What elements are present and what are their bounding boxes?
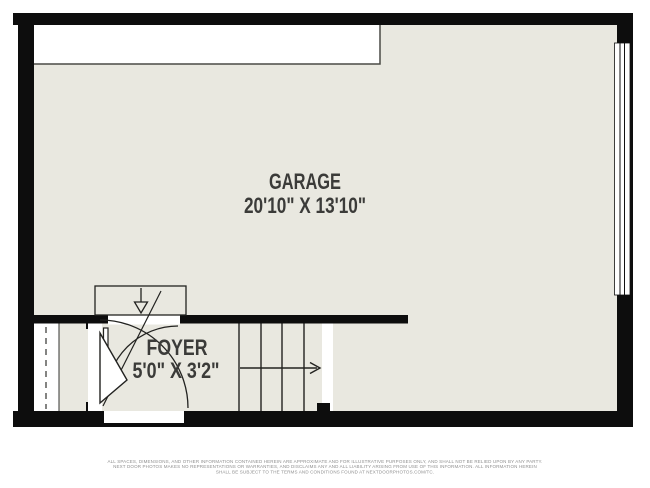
disclaimer-line-3: SHALL BE SUBJECT TO THE TERMS AND CONDIT… [0, 469, 650, 474]
floor-plan-drawing: GARAGE 20'10" X 13'10" FOYER 5'0" X 3'2" [0, 0, 650, 488]
wall-left [18, 13, 34, 427]
wall-top [13, 13, 633, 25]
garage-dimensions: 20'10" X 13'10" [244, 193, 366, 218]
stair-wall-stub [317, 403, 330, 412]
foyer-label: FOYER [147, 335, 208, 360]
disclaimer-text: ALL SPACES, DIMENSIONS, AND OTHER INFORM… [0, 459, 650, 475]
foyer-entry-vestibule [95, 286, 186, 315]
garage-door-opening [34, 25, 380, 64]
floor-plan-page: GARAGE 20'10" X 13'10" FOYER 5'0" X 3'2"… [0, 0, 650, 488]
bottom-door-opening [104, 411, 184, 423]
garage-label: GARAGE [269, 169, 341, 194]
stair-landing-opening [322, 324, 333, 412]
foyer-dimensions: 5'0" X 3'2" [133, 358, 220, 383]
window-icon [615, 43, 631, 295]
opening-dashed-line [34, 324, 59, 412]
